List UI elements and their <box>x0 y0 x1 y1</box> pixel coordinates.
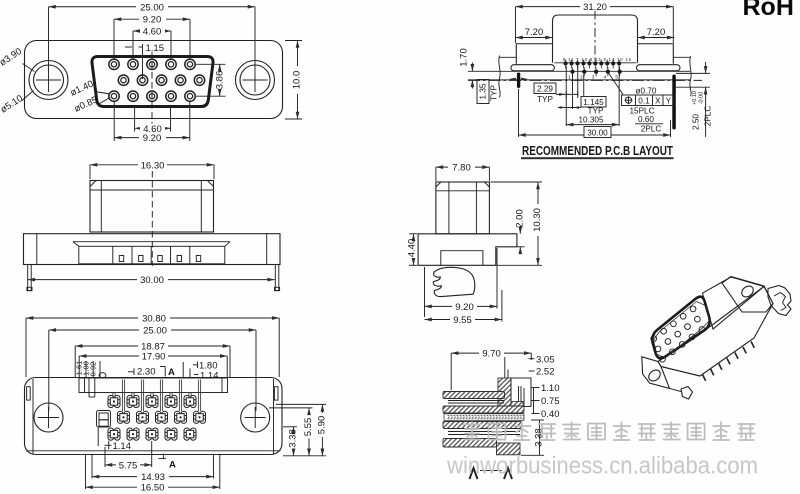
svg-text:2.52: 2.52 <box>536 367 555 378</box>
svg-text:2.50: 2.50 <box>692 114 701 130</box>
svg-text:25.00: 25.00 <box>143 326 167 337</box>
svg-text:16.50: 16.50 <box>141 483 165 494</box>
svg-text:25.00: 25.00 <box>140 2 164 13</box>
svg-text:2.29: 2.29 <box>537 84 553 93</box>
svg-text:9.55: 9.55 <box>453 315 472 326</box>
svg-text:A: A <box>168 367 175 378</box>
svg-text:TYP: TYP <box>588 107 604 116</box>
svg-text:1.35: 1.35 <box>479 83 488 99</box>
svg-text:5: 5 <box>615 75 618 81</box>
svg-text:-0.00: -0.00 <box>699 92 705 105</box>
svg-text:0.40: 0.40 <box>541 409 560 420</box>
svg-text:A: A <box>169 460 176 471</box>
svg-text:ø5.10: ø5.10 <box>0 93 25 115</box>
svg-text:30.00: 30.00 <box>140 275 164 286</box>
svg-text:RoH: RoH <box>743 0 794 21</box>
svg-text:4: 4 <box>604 75 607 81</box>
svg-text:4.40: 4.40 <box>407 239 418 258</box>
svg-text:7.20: 7.20 <box>525 27 544 38</box>
svg-text:3.86: 3.86 <box>215 71 226 90</box>
svg-text:5.55: 5.55 <box>303 418 314 437</box>
svg-text:10.30: 10.30 <box>532 208 543 232</box>
svg-text:0.75: 0.75 <box>541 396 560 407</box>
svg-text:+0.10: +0.10 <box>692 91 698 105</box>
svg-text:7.80: 7.80 <box>452 163 471 174</box>
svg-text:TYP: TYP <box>490 85 499 101</box>
svg-text:17.90: 17.90 <box>142 352 166 363</box>
svg-text:30.80: 30.80 <box>142 314 166 325</box>
svg-text:2PLC: 2PLC <box>704 106 713 127</box>
svg-text:1.14: 1.14 <box>200 371 219 382</box>
svg-text:ø0.85: ø0.85 <box>73 94 100 114</box>
svg-text:9.20: 9.20 <box>143 133 162 144</box>
svg-text:TYP: TYP <box>537 95 553 104</box>
svg-text:9.70: 9.70 <box>482 349 501 360</box>
svg-text:9.20: 9.20 <box>455 302 474 313</box>
svg-text:16.30: 16.30 <box>141 160 165 171</box>
svg-text:1: 1 <box>568 75 571 81</box>
svg-text:2.00: 2.00 <box>515 209 526 228</box>
svg-text:7.20: 7.20 <box>647 27 666 38</box>
svg-text:2PLC: 2PLC <box>641 125 662 134</box>
svg-text:31.20: 31.20 <box>583 2 607 13</box>
svg-text:3: 3 <box>592 75 595 81</box>
svg-text:1.70: 1.70 <box>459 48 470 67</box>
svg-text:X: X <box>655 97 661 106</box>
svg-text:ø0.70: ø0.70 <box>636 87 657 96</box>
svg-text:Y: Y <box>666 97 672 106</box>
svg-text:winworbusiness.cn.alibaba.com: winworbusiness.cn.alibaba.com <box>446 453 758 480</box>
svg-text:1.14: 1.14 <box>113 441 132 452</box>
svg-text:ø3.90: ø3.90 <box>0 46 24 68</box>
svg-text:10.305: 10.305 <box>578 116 603 125</box>
svg-text:2: 2 <box>580 75 583 81</box>
svg-text:1.10: 1.10 <box>541 383 560 394</box>
svg-text:4.60: 4.60 <box>143 27 162 38</box>
svg-text:3.05: 3.05 <box>536 354 555 365</box>
svg-text:14.93: 14.93 <box>141 472 165 483</box>
svg-text:1.145: 1.145 <box>583 98 604 107</box>
svg-text:10.0: 10.0 <box>292 71 303 90</box>
svg-text:30.00: 30.00 <box>587 128 608 137</box>
svg-text:3.38: 3.38 <box>288 429 299 448</box>
svg-text:0.1: 0.1 <box>638 97 650 106</box>
svg-text:6 11 7 12 8 13 9 14 10 15: 6 11 7 12 8 13 9 14 10 15 <box>563 57 632 62</box>
svg-text:1.15: 1.15 <box>146 43 165 54</box>
svg-text:2.30: 2.30 <box>137 367 156 378</box>
svg-text:9.20: 9.20 <box>143 15 162 26</box>
svg-text:0.60: 0.60 <box>638 115 654 124</box>
svg-text:5.90: 5.90 <box>316 416 327 435</box>
svg-text:RECOMMENDED P.C.B LAYOUT: RECOMMENDED P.C.B LAYOUT <box>522 144 673 158</box>
svg-text:5.75: 5.75 <box>119 460 138 471</box>
